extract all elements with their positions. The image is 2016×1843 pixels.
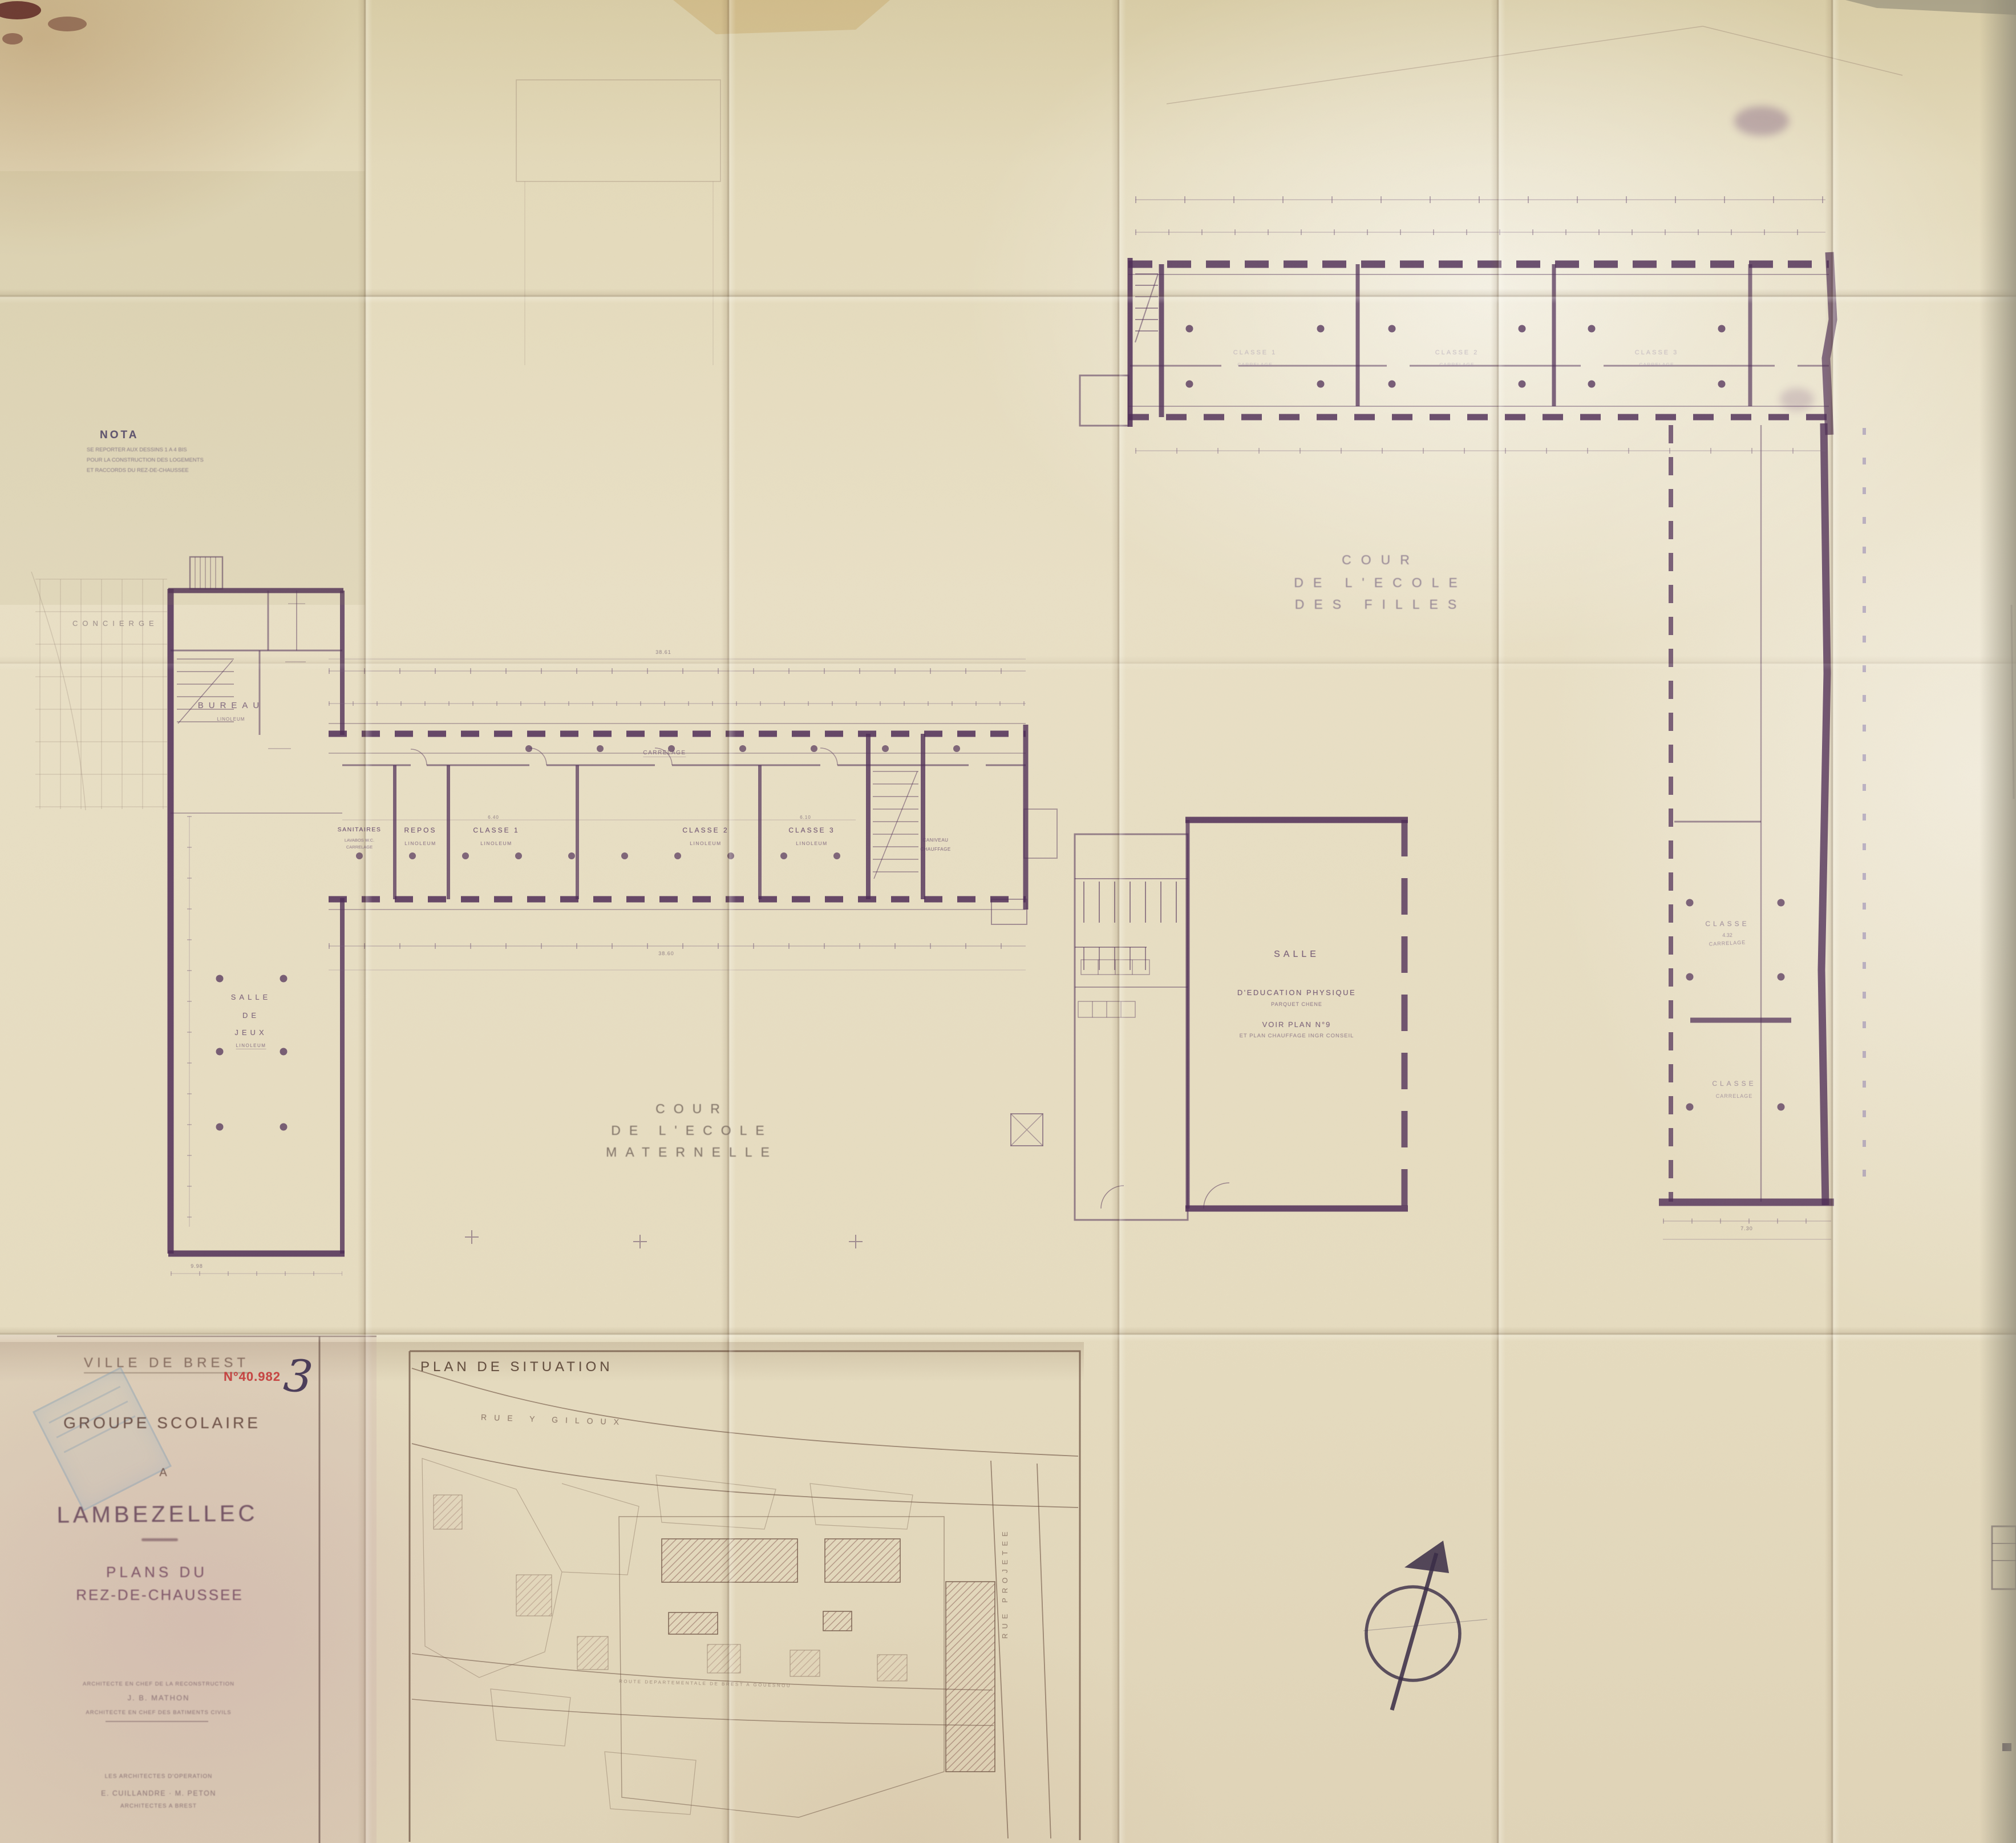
room-label: CLASSE (1705, 920, 1749, 928)
room-sub: LINOLEUM (690, 840, 721, 846)
room-label-faint: CLASSE 3 (1635, 349, 1679, 356)
room-sub: LINOLEUM (404, 840, 436, 846)
label-gym: ET PLAN CHAUFFAGE INGR CONSEIL (1240, 1033, 1354, 1039)
title-plan-line2: REZ-DE-CHAUSSEE (76, 1586, 243, 1604)
label-caniveau: CHAUFFAGE (920, 847, 950, 852)
corridor-floor-label: CARRELAGE (643, 750, 686, 757)
label-caniveau: CANIVEAU (923, 838, 949, 843)
dimension-text: 38.61 (655, 649, 671, 655)
divider-line (106, 1721, 208, 1722)
architect-line: E. CUILLANDRE · M. PETON (101, 1789, 216, 1797)
dimension-text: 6.10 (800, 815, 811, 820)
nota-line: SE REPORTER AUX DESSINS 1 A 4 BIS (87, 447, 187, 453)
nota-line: POUR LA CONSTRUCTION DES LOGEMENTS (87, 457, 204, 463)
street-label-vertical: RUE PROJETEE (1001, 1527, 1009, 1639)
label-cour-filles: DE L'ECOLE (1294, 575, 1467, 591)
room-sub: CARRELAGE (1716, 1093, 1753, 1099)
architect-line: ARCHITECTE EN CHEF DES BATIMENTS CIVILS (86, 1709, 231, 1716)
title-project: GROUPE SCOLAIRE (63, 1414, 261, 1432)
label-salle-jeux: DE (242, 1011, 260, 1020)
room-label: CLASSE 1 (473, 826, 519, 834)
room-sub: LINOLEUM (480, 840, 512, 846)
room-label: CLASSE (1712, 1080, 1756, 1088)
room-label: REPOS (404, 826, 436, 834)
room-label: SANITAIRES (338, 826, 382, 833)
label-cour-maternelle: DE L'ECOLE (611, 1123, 773, 1138)
architect-line: ARCHITECTE EN CHEF DE LA RECONSTRUCTION (83, 1681, 234, 1687)
label-salle-jeux: SALLE (231, 993, 271, 1001)
label-salle-jeux: JEUX (234, 1028, 267, 1037)
room-label-faint: CLASSE 1 (1233, 349, 1277, 356)
label-cour-filles: COUR (1342, 552, 1419, 568)
room-sub-faint: CARRELAGE (1639, 362, 1674, 367)
architect-line: J. B. MATHON (128, 1694, 190, 1702)
situation-title: PLAN DE SITUATION (420, 1359, 613, 1375)
label-bureau: BUREAU (198, 701, 265, 710)
label-gym: VOIR PLAN N°9 (1262, 1020, 1331, 1029)
label-cour-filles: DES FILLES (1295, 597, 1466, 612)
room-label: CLASSE 3 (788, 826, 835, 834)
sheet-number: 3 (281, 1350, 315, 1404)
architect-line: LES ARCHITECTES D'OPERATION (105, 1773, 213, 1780)
room-sub: LAVABOS W.C. (345, 838, 374, 843)
underline-stroke (141, 1538, 178, 1541)
architect-line: ARCHITECTES A BREST (120, 1803, 197, 1809)
room-label: CLASSE 2 (682, 826, 728, 834)
dimension-text: 9.98 (191, 1263, 203, 1269)
label-gym: SALLE (1274, 949, 1319, 960)
room-sub-faint: CARRELAGE (1237, 362, 1272, 367)
label-cour-maternelle: MATERNELLE (606, 1145, 778, 1160)
dimension-text: 6.40 (488, 815, 499, 820)
room-dim: 4.32 (1722, 932, 1732, 938)
label-salle-jeux-floor: LINOLEUM (236, 1043, 266, 1049)
label-bureau-floor: LINOLEUM (217, 717, 245, 722)
label-concierge: CONCIERGE (72, 619, 159, 628)
room-label-faint: CLASSE 2 (1435, 349, 1479, 356)
title-plan-line1: PLANS DU (106, 1563, 208, 1581)
dimension-text: 38.60 (658, 951, 674, 956)
label-cour-maternelle: COUR (655, 1101, 728, 1117)
title-at: A (159, 1466, 167, 1480)
nota-title: NOTA (100, 429, 139, 442)
dimension-text: 7.30 (1740, 1226, 1753, 1231)
room-sub-faint: CARRELAGE (1439, 362, 1474, 367)
room-sub: CARRELAGE (346, 844, 373, 850)
blueprint-sheet: NOTA SE REPORTER AUX DESSINS 1 A 4 BIS P… (0, 0, 2016, 1843)
label-gym: PARQUET CHENE (1271, 1001, 1322, 1007)
label-gym: D'EDUCATION PHYSIQUE (1237, 988, 1356, 997)
archive-stamp: N°40.982 (224, 1369, 281, 1384)
room-sub: LINOLEUM (796, 840, 827, 846)
title-place: LAMBEZELLEC (56, 1501, 258, 1528)
nota-line: ET RACCORDS DU REZ-DE-CHAUSSEE (87, 467, 189, 474)
